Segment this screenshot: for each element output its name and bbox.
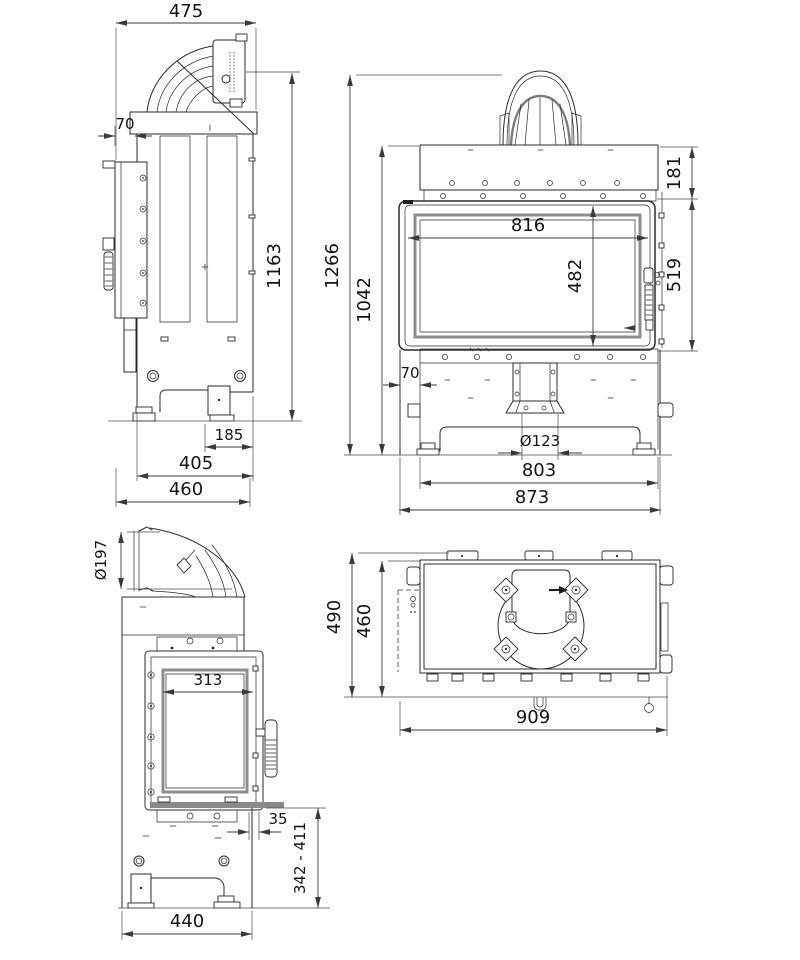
dim-label: 1266	[322, 243, 343, 289]
feet	[133, 407, 234, 421]
technical-drawing: 475 70 1163 185 405 460	[0, 0, 800, 960]
flue-elbow-icon	[134, 527, 245, 597]
dim-label: 181	[664, 156, 685, 190]
small-marks	[161, 125, 255, 341]
dim-label: 35	[268, 810, 287, 828]
dim-label: 816	[511, 215, 545, 236]
dim-label: 313	[194, 671, 223, 689]
dim-label: 909	[516, 707, 550, 728]
top-view: 490 460 909	[324, 551, 673, 736]
bottom-tabs	[427, 674, 649, 681]
flue-opening	[494, 570, 588, 669]
dim-glass-height: 482	[565, 206, 593, 346]
dim-label: 70	[115, 115, 134, 133]
convection-channel	[207, 136, 237, 322]
dim-glass-width: 816	[408, 215, 648, 238]
dim-side-height: 1163	[246, 72, 300, 421]
dim-label: 1042	[354, 277, 375, 323]
dim-flue-diameter: Ø197	[92, 532, 232, 589]
dim-label: 475	[169, 1, 203, 22]
mount-tab	[408, 404, 420, 417]
front-view: 816 482	[322, 71, 698, 515]
dim-label: 342 - 411	[291, 822, 309, 894]
side-view: 475 70 1163 185 405 460	[98, 1, 302, 507]
door-sill	[150, 802, 284, 808]
front-frame	[115, 162, 147, 318]
damper-rod	[177, 61, 253, 133]
lower-casing	[344, 349, 673, 455]
dim-label: 1163	[264, 243, 285, 289]
dim-label: Ø123	[520, 432, 560, 450]
door-handle-icon	[103, 238, 114, 290]
dim-depth: 440	[122, 911, 252, 940]
flue-dome-icon	[500, 71, 581, 145]
damper-knob	[177, 558, 191, 573]
dim-front-left-offset: 70	[383, 364, 437, 385]
dim-label: 482	[565, 259, 586, 293]
pendant-ring	[645, 704, 654, 713]
damper-knob	[222, 75, 230, 83]
dim-top-width: 909	[400, 676, 667, 736]
dim-label: 873	[515, 487, 549, 508]
lower-panel	[124, 318, 136, 372]
top-body	[344, 551, 673, 713]
side-glass-view: 313 Ø197	[92, 527, 330, 940]
dim-label: 803	[522, 460, 556, 481]
dim-front-widths: 803 873	[399, 457, 661, 515]
drawing-canvas: 475 70 1163 185 405 460	[0, 0, 800, 960]
flue-spigot	[506, 363, 564, 413]
door-latch-icon	[644, 268, 660, 330]
dim-label: 405	[179, 453, 213, 474]
dim-flue-diameter: Ø123	[498, 414, 582, 460]
dim-label: 440	[170, 911, 204, 932]
dim-label: 185	[215, 426, 244, 444]
dim-label: 460	[169, 479, 203, 500]
dim-side-frame-offset: 70	[98, 115, 152, 146]
hood-casing	[420, 145, 658, 201]
dim-label: Ø197	[92, 540, 110, 580]
convection-channel	[160, 136, 190, 322]
dim-front-right-heights: 181 519	[657, 147, 698, 351]
dim-label: 490	[324, 600, 345, 634]
dim-label: 460	[354, 604, 375, 638]
dim-front-heights: 1266 1042	[322, 75, 502, 455]
flue-elbow-icon	[147, 34, 253, 133]
mount-tab	[658, 403, 673, 417]
dim-label: 519	[664, 258, 685, 292]
dim-label: 70	[400, 364, 419, 382]
dim-door-protrusion: 35	[227, 810, 288, 840]
feet	[128, 896, 240, 908]
